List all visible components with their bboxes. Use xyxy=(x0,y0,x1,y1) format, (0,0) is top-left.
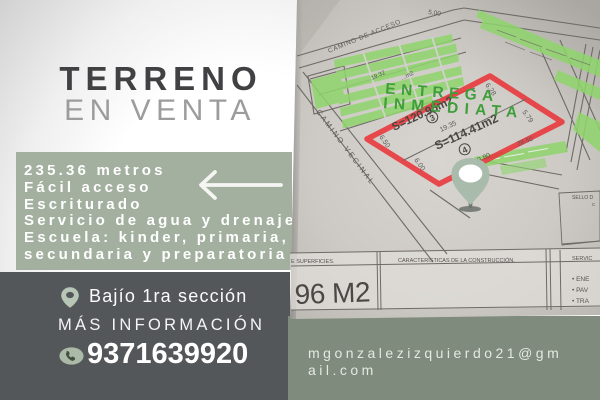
svg-text:• TRA: • TRA xyxy=(572,298,590,305)
svg-text:CARACTERISTICAS DE LA CONSTRUC: CARACTERISTICAS DE LA CONSTRUCCIÓN. xyxy=(398,257,515,264)
svg-text:96 M2: 96 M2 xyxy=(294,276,370,310)
svg-text:• PAV: • PAV xyxy=(572,287,589,294)
svg-text:SELLO D: SELLO D xyxy=(572,195,594,201)
svg-text:• ENE: • ENE xyxy=(572,276,590,283)
svg-text:SERVIC: SERVIC xyxy=(572,256,592,262)
svg-text:E SUPERFICIES.: E SUPERFICIES. xyxy=(291,259,335,265)
